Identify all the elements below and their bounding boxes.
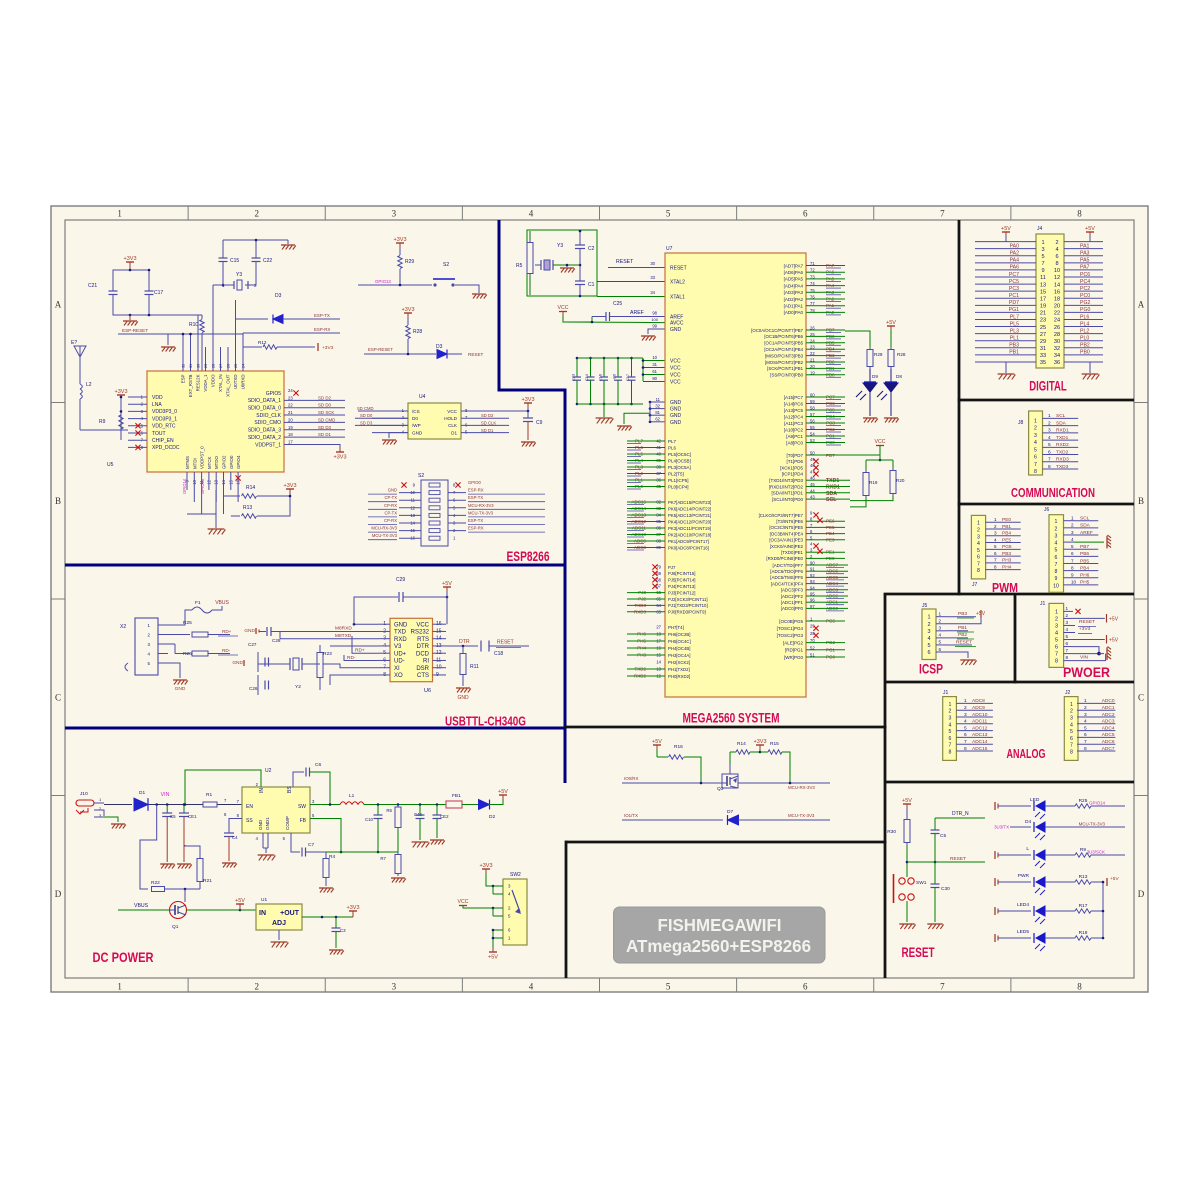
svg-text:13: 13 xyxy=(1040,282,1046,288)
svg-text:C25: C25 xyxy=(613,301,622,307)
svg-text:7: 7 xyxy=(1055,562,1058,568)
svg-text:ADC8: ADC8 xyxy=(972,698,985,704)
svg-text:SD D1: SD D1 xyxy=(318,432,331,437)
svg-text:ESP-TX: ESP-TX xyxy=(468,495,483,500)
svg-text:M8RXD: M8RXD xyxy=(335,626,352,632)
svg-text:PK6[ADC14/PCINT22]: PK6[ADC14/PCINT22] xyxy=(668,506,711,511)
svg-text:27: 27 xyxy=(219,364,223,368)
svg-text:7: 7 xyxy=(1048,457,1051,463)
svg-text:R12: R12 xyxy=(258,340,267,345)
svg-text:3: 3 xyxy=(938,626,941,631)
svg-text:ADC5: ADC5 xyxy=(1102,732,1115,738)
svg-text:U2: U2 xyxy=(265,768,272,774)
svg-text:PK1[ADC9/PCINT17]: PK1[ADC9/PCINT17] xyxy=(668,539,709,544)
svg-text:29: 29 xyxy=(1040,339,1046,345)
svg-text:6: 6 xyxy=(994,551,997,556)
svg-text:18: 18 xyxy=(1054,296,1060,302)
svg-text:PL2: PL2 xyxy=(1080,328,1089,334)
svg-text:5: 5 xyxy=(1070,729,1073,735)
svg-text:+5V: +5V xyxy=(902,798,912,804)
svg-text:R15: R15 xyxy=(770,741,779,747)
svg-text:30: 30 xyxy=(197,364,201,368)
svg-text:ADC12: ADC12 xyxy=(972,725,988,731)
svg-text:ADC9: ADC9 xyxy=(972,705,985,711)
svg-text:ADC14: ADC14 xyxy=(972,739,988,745)
svg-text:PH4[OC4B]: PH4[OC4B] xyxy=(668,646,690,651)
svg-text:C7: C7 xyxy=(308,842,314,848)
svg-text:100: 100 xyxy=(651,317,658,322)
svg-text:PL1[ICP5]: PL1[ICP5] xyxy=(668,478,689,483)
svg-text:VDD3P3_1: VDD3P3_1 xyxy=(152,416,177,422)
svg-text:6: 6 xyxy=(1084,732,1087,738)
svg-text:SD CLK: SD CLK xyxy=(481,421,496,426)
svg-text:/WP: /WP xyxy=(412,423,421,428)
svg-text:80: 80 xyxy=(652,376,657,381)
svg-text:C21: C21 xyxy=(88,283,97,289)
svg-text:PH0[RXD2]: PH0[RXD2] xyxy=(668,674,690,679)
svg-text:PH3: PH3 xyxy=(1002,558,1012,564)
svg-text:L1: L1 xyxy=(349,793,355,799)
svg-text:27: 27 xyxy=(656,625,661,630)
svg-text:[RXD1/INT2]PD2: [RXD1/INT2]PD2 xyxy=(769,484,804,489)
svg-text:[OC2A/PCINT4]PB4: [OC2A/PCINT4]PB4 xyxy=(764,347,803,352)
svg-text:[AD6]PA6: [AD6]PA6 xyxy=(784,270,804,275)
svg-text:GND: GND xyxy=(670,407,682,413)
svg-text:ESP-TX: ESP-TX xyxy=(314,313,330,318)
svg-text:DTR_N: DTR_N xyxy=(952,811,969,817)
svg-text:MTMS: MTMS xyxy=(185,456,190,469)
svg-text:3: 3 xyxy=(964,712,967,718)
svg-text:R20: R20 xyxy=(896,478,905,483)
svg-text:C27: C27 xyxy=(248,642,257,647)
svg-text:CE1: CE1 xyxy=(188,814,197,819)
svg-text:4: 4 xyxy=(938,633,941,638)
svg-text:PB1: PB1 xyxy=(1009,350,1019,356)
svg-text:SDA: SDA xyxy=(826,491,837,497)
svg-text:7: 7 xyxy=(949,743,952,749)
svg-text:PC4: PC4 xyxy=(1080,279,1090,285)
svg-text:+5V: +5V xyxy=(498,789,508,795)
svg-text:4: 4 xyxy=(977,541,980,547)
svg-text:SDIO_DATA_3: SDIO_DATA_3 xyxy=(248,428,281,434)
svg-text:[TXD0]PE1: [TXD0]PE1 xyxy=(781,550,804,555)
svg-text:7: 7 xyxy=(1055,652,1058,658)
svg-text:SD D2: SD D2 xyxy=(481,413,494,418)
svg-text:5: 5 xyxy=(949,729,952,735)
svg-text:[TOSC1]PG4: [TOSC1]PG4 xyxy=(777,626,804,631)
svg-text:ADC4: ADC4 xyxy=(1102,725,1115,731)
svg-text:R22: R22 xyxy=(151,880,160,886)
svg-text:22: 22 xyxy=(1054,311,1060,317)
svg-text:6: 6 xyxy=(1048,449,1051,455)
svg-text:18: 18 xyxy=(288,432,293,437)
svg-text:1: 1 xyxy=(117,209,122,219)
svg-text:U1: U1 xyxy=(261,897,267,903)
svg-text:A: A xyxy=(55,299,62,309)
svg-text:ESP: ESP xyxy=(181,374,186,383)
svg-text:3: 3 xyxy=(392,982,397,992)
svg-text:C5: C5 xyxy=(170,814,176,819)
svg-text:RESET: RESET xyxy=(616,259,634,265)
svg-text:5: 5 xyxy=(1048,442,1051,448)
svg-text:10: 10 xyxy=(1054,268,1060,274)
svg-text:8: 8 xyxy=(1070,750,1073,756)
svg-text:[TOSC2]PG3: [TOSC2]PG3 xyxy=(777,633,804,638)
svg-text:26: 26 xyxy=(1054,325,1060,331)
svg-text:4: 4 xyxy=(1071,537,1074,542)
svg-text:[A10]PC2: [A10]PC2 xyxy=(784,427,804,432)
svg-text:GPIO13: GPIO13 xyxy=(375,279,391,284)
svg-text:33: 33 xyxy=(650,275,655,280)
svg-text:VDD: VDD xyxy=(152,395,163,401)
svg-text:+5V: +5V xyxy=(1109,617,1119,623)
svg-text:GPIO0: GPIO0 xyxy=(468,480,481,485)
svg-text:IO0/RX: IO0/RX xyxy=(624,776,638,781)
svg-text:PH7[T4]: PH7[T4] xyxy=(668,625,684,630)
svg-text:29: 29 xyxy=(204,364,208,368)
svg-text:VDD_RTC: VDD_RTC xyxy=(152,424,176,430)
svg-text:2: 2 xyxy=(1071,523,1074,528)
svg-text:CP-RX: CP-RX xyxy=(384,518,397,523)
svg-text:SDIO_DATA_0: SDIO_DATA_0 xyxy=(248,406,281,412)
svg-text:PJ3[PCINT12]: PJ3[PCINT12] xyxy=(668,590,695,595)
svg-text:CHIP_EN: CHIP_EN xyxy=(152,438,174,444)
svg-text:[A8]PC0: [A8]PC0 xyxy=(786,440,803,445)
svg-text:[T1]PD6: [T1]PD6 xyxy=(786,459,803,464)
svg-text:MTDO: MTDO xyxy=(214,455,219,469)
svg-text:[T3/INT6]PE6: [T3/INT6]PE6 xyxy=(776,519,803,524)
svg-text:5: 5 xyxy=(994,544,997,549)
svg-text:+5V: +5V xyxy=(442,581,452,587)
svg-text:PA4: PA4 xyxy=(1010,258,1020,264)
svg-text:4: 4 xyxy=(529,209,534,219)
svg-text:1: 1 xyxy=(938,612,941,617)
svg-text:+3V3: +3V3 xyxy=(284,483,297,489)
svg-text:S2: S2 xyxy=(443,262,449,268)
svg-text:D1: D1 xyxy=(451,430,457,435)
svg-text:GND: GND xyxy=(394,622,408,628)
svg-text:GPIO5: GPIO5 xyxy=(266,391,282,397)
svg-text:J7: J7 xyxy=(972,582,978,588)
svg-text:VDDPST_0: VDDPST_0 xyxy=(200,446,205,469)
svg-text:[AD0]PA0: [AD0]PA0 xyxy=(784,310,804,315)
svg-text:XO: XO xyxy=(394,673,403,679)
svg-text:PG0: PG0 xyxy=(1080,307,1090,313)
svg-text:R13: R13 xyxy=(243,505,252,511)
svg-text:ATmega2560+ESP8266: ATmega2560+ESP8266 xyxy=(626,936,811,956)
svg-text:PL6: PL6 xyxy=(1080,314,1089,320)
svg-text:+5V: +5V xyxy=(488,955,498,961)
svg-text:ADC7: ADC7 xyxy=(1102,746,1115,752)
svg-text:S2: S2 xyxy=(418,473,424,479)
svg-text:R19: R19 xyxy=(869,480,878,485)
svg-text:C28: C28 xyxy=(272,638,281,643)
svg-text:1: 1 xyxy=(927,615,930,621)
svg-text:25: 25 xyxy=(1040,325,1046,331)
svg-text:+5V: +5V xyxy=(1001,226,1011,232)
svg-text:[CLKO/ICP3/INT7]PE7: [CLKO/ICP3/INT7]PE7 xyxy=(759,513,804,518)
svg-text:PG2: PG2 xyxy=(1080,300,1090,306)
svg-text:[ADC1]PF1: [ADC1]PF1 xyxy=(781,600,804,605)
svg-text:PL7: PL7 xyxy=(1010,314,1019,320)
svg-text:U0TXD: U0TXD xyxy=(233,375,238,389)
svg-text:RESET: RESET xyxy=(497,640,514,646)
svg-text:23: 23 xyxy=(288,395,293,400)
svg-text:EN: EN xyxy=(246,804,253,810)
svg-text:GPIO14: GPIO14 xyxy=(182,478,187,494)
svg-text:+3V3: +3V3 xyxy=(402,307,415,313)
svg-text:1: 1 xyxy=(964,698,967,704)
svg-text:10: 10 xyxy=(1053,583,1059,589)
svg-text:Y2: Y2 xyxy=(295,684,301,690)
svg-text:Y3: Y3 xyxy=(236,272,242,278)
svg-text:2: 2 xyxy=(964,705,967,711)
svg-text:/CS: /CS xyxy=(412,409,420,414)
svg-text:D: D xyxy=(55,889,62,899)
svg-text:V3: V3 xyxy=(394,644,402,650)
svg-text:+3V3: +3V3 xyxy=(347,905,360,911)
svg-text:GPIO0: GPIO0 xyxy=(229,455,234,469)
svg-text:12: 12 xyxy=(1054,275,1060,281)
svg-text:VDD3P3_0: VDD3P3_0 xyxy=(152,409,177,415)
svg-text:RXD2: RXD2 xyxy=(1056,442,1069,448)
svg-text:2: 2 xyxy=(1034,426,1037,432)
svg-text:+5V: +5V xyxy=(235,898,245,904)
svg-text:MCU-TX-3V3: MCU-TX-3V3 xyxy=(788,813,815,818)
svg-text:6: 6 xyxy=(1065,641,1068,646)
svg-text:IN: IN xyxy=(259,788,265,793)
svg-text:5: 5 xyxy=(927,643,930,649)
svg-text:R21: R21 xyxy=(203,878,212,884)
svg-text:PD7: PD7 xyxy=(1009,300,1019,306)
svg-text:R13: R13 xyxy=(1079,874,1088,880)
svg-text:14: 14 xyxy=(656,660,661,665)
svg-text:1: 1 xyxy=(994,517,997,522)
svg-text:[AD7]PA7: [AD7]PA7 xyxy=(784,263,804,268)
svg-text:J8: J8 xyxy=(1018,420,1024,426)
svg-text:LED5: LED5 xyxy=(1017,929,1029,935)
svg-text:3: 3 xyxy=(1055,533,1058,539)
svg-text:3: 3 xyxy=(1065,620,1068,625)
svg-text:D9: D9 xyxy=(872,374,878,379)
svg-text:5: 5 xyxy=(666,209,671,219)
svg-text:8: 8 xyxy=(1077,982,1082,992)
svg-text:1: 1 xyxy=(1034,418,1037,424)
svg-text:CP-TX: CP-TX xyxy=(384,510,397,515)
svg-text:17: 17 xyxy=(288,439,293,444)
svg-text:[SDA/INT1]PD1: [SDA/INT1]PD1 xyxy=(771,491,803,496)
svg-text:6: 6 xyxy=(1034,455,1037,461)
svg-text:3U3/TX: 3U3/TX xyxy=(994,825,1009,830)
svg-text:DCD: DCD xyxy=(416,651,430,657)
svg-text:17: 17 xyxy=(1040,296,1046,302)
svg-text:[XCK1]PD5: [XCK1]PD5 xyxy=(780,465,804,470)
svg-text:R14: R14 xyxy=(246,485,255,491)
svg-text:8: 8 xyxy=(1034,469,1037,475)
svg-text:PB4: PB4 xyxy=(1002,531,1011,537)
svg-text:19: 19 xyxy=(288,425,293,430)
svg-text:U7: U7 xyxy=(666,246,673,252)
svg-text:COMP: COMP xyxy=(285,816,290,830)
svg-text:PJ0[RXD3/PCINT9]: PJ0[RXD3/PCINT9] xyxy=(668,610,706,615)
svg-text:[A11]PC3: [A11]PC3 xyxy=(784,421,803,426)
svg-text:31: 31 xyxy=(1040,346,1046,352)
svg-text:C5: C5 xyxy=(940,833,946,839)
svg-text:1: 1 xyxy=(117,982,122,992)
svg-text:8: 8 xyxy=(1065,655,1068,660)
svg-text:VIN: VIN xyxy=(161,792,170,798)
svg-text:4: 4 xyxy=(1034,440,1037,446)
svg-text:R9: R9 xyxy=(1080,847,1086,853)
svg-text:PA0: PA0 xyxy=(1010,243,1020,249)
svg-text:2: 2 xyxy=(1055,240,1058,246)
svg-text:4: 4 xyxy=(1084,719,1087,725)
svg-text:XI: XI xyxy=(394,666,400,672)
svg-text:DSR: DSR xyxy=(416,666,429,672)
svg-text:15: 15 xyxy=(1040,289,1046,295)
svg-text:RXD: RXD xyxy=(394,637,407,643)
svg-text:C17: C17 xyxy=(626,374,630,381)
svg-text:MTCK: MTCK xyxy=(207,456,212,469)
svg-text:C26: C26 xyxy=(249,686,258,691)
svg-text:[A13]PC5: [A13]PC5 xyxy=(784,408,804,413)
svg-text:7: 7 xyxy=(1065,648,1068,653)
svg-text:D3: D3 xyxy=(275,293,282,299)
svg-text:[OC1B/PCINT6]PB6: [OC1B/PCINT6]PB6 xyxy=(764,334,803,339)
svg-text:SDIO_DATA_2: SDIO_DATA_2 xyxy=(248,435,281,441)
svg-text:U5: U5 xyxy=(107,462,114,468)
svg-text:PL2[T5]: PL2[T5] xyxy=(668,471,684,476)
svg-text:[OC0B]PG5: [OC0B]PG5 xyxy=(779,619,803,624)
svg-text:R25: R25 xyxy=(1079,798,1088,804)
svg-text:C30: C30 xyxy=(941,886,950,892)
svg-text:[WR]PG0: [WR]PG0 xyxy=(784,655,803,660)
svg-text:6: 6 xyxy=(1071,551,1074,556)
svg-text:24: 24 xyxy=(288,388,293,393)
svg-text:PC0: PC0 xyxy=(1080,293,1090,299)
svg-text:PH3[OC4A]: PH3[OC4A] xyxy=(668,653,690,658)
svg-text:ESP-RX: ESP-RX xyxy=(468,488,484,493)
svg-text:6: 6 xyxy=(927,650,930,656)
svg-text:FB1: FB1 xyxy=(452,793,461,799)
svg-text:PJ5[PCINT14]: PJ5[PCINT14] xyxy=(668,578,695,583)
svg-text:ADC3: ADC3 xyxy=(1102,719,1115,725)
svg-text:4: 4 xyxy=(1055,541,1058,547)
svg-text:R6: R6 xyxy=(386,808,392,813)
svg-text:5: 5 xyxy=(1041,254,1044,260)
svg-text:ADC2: ADC2 xyxy=(1102,712,1115,718)
svg-text:[AD4]PA4: [AD4]PA4 xyxy=(784,283,804,288)
svg-text:[ALE]PG2: [ALE]PG2 xyxy=(783,640,804,645)
svg-text:PH4: PH4 xyxy=(1002,564,1012,570)
svg-text:4: 4 xyxy=(994,537,997,542)
svg-text:R18: R18 xyxy=(1079,930,1088,936)
svg-text:3U3/SCK: 3U3/SCK xyxy=(1087,850,1105,855)
svg-text:4: 4 xyxy=(1055,630,1058,636)
svg-text:32: 32 xyxy=(655,403,660,408)
svg-text:7: 7 xyxy=(1071,558,1074,563)
svg-text:RD+: RD+ xyxy=(355,648,365,654)
svg-text:21: 21 xyxy=(288,410,293,415)
svg-text:36: 36 xyxy=(1054,360,1060,366)
svg-text:Q3: Q3 xyxy=(717,786,724,792)
svg-text:PH5[OC4C]: PH5[OC4C] xyxy=(668,639,691,644)
svg-text:XTAL_IN: XTAL_IN xyxy=(218,375,223,393)
svg-text:VDDO: VDDO xyxy=(211,374,216,387)
svg-text:L: L xyxy=(1026,846,1029,852)
svg-text:2: 2 xyxy=(994,524,997,529)
svg-text:RXD1: RXD1 xyxy=(826,485,840,491)
svg-text:IN: IN xyxy=(259,910,266,917)
svg-text:31: 31 xyxy=(652,362,657,367)
svg-text:2: 2 xyxy=(1055,526,1058,532)
svg-text:Y3: Y3 xyxy=(557,243,563,249)
svg-text:4: 4 xyxy=(927,636,930,642)
svg-text:RXD1: RXD1 xyxy=(1056,428,1069,434)
svg-text:RXD3: RXD3 xyxy=(1056,457,1069,463)
svg-text:4: 4 xyxy=(949,722,952,728)
svg-text:[OC3C/INT5]PE5: [OC3C/INT5]PE5 xyxy=(769,525,803,530)
svg-text:+OUT: +OUT xyxy=(280,910,300,917)
svg-text:4: 4 xyxy=(964,719,967,725)
svg-text:8: 8 xyxy=(949,750,952,756)
svg-text:RES12K: RES12K xyxy=(196,374,201,391)
svg-text:SW: SW xyxy=(298,804,306,810)
svg-text:CTS: CTS xyxy=(417,673,429,679)
svg-text:PC2: PC2 xyxy=(1080,286,1090,292)
svg-text:C: C xyxy=(55,692,61,702)
svg-text:SCL: SCL xyxy=(826,497,837,503)
svg-text:PB3: PB3 xyxy=(1002,551,1011,557)
svg-text:XPD_DCDC: XPD_DCDC xyxy=(152,445,180,451)
svg-text:5: 5 xyxy=(1055,548,1058,554)
svg-text:9: 9 xyxy=(1055,576,1058,582)
svg-text:PL3[OC5A]: PL3[OC5A] xyxy=(668,465,691,470)
svg-text:LED: LED xyxy=(1030,797,1040,803)
svg-text:R9: R9 xyxy=(99,419,106,425)
svg-text:R7: R7 xyxy=(380,856,386,861)
svg-text:GND: GND xyxy=(670,420,682,426)
svg-text:[ADC0]PF0: [ADC0]PF0 xyxy=(781,606,804,611)
svg-text:PB1: PB1 xyxy=(1002,524,1011,530)
svg-text:D: D xyxy=(1138,889,1145,899)
svg-text:3: 3 xyxy=(1048,428,1051,434)
svg-text:PH2[XCK2]: PH2[XCK2] xyxy=(668,660,690,665)
svg-text:VBUS: VBUS xyxy=(215,600,229,606)
svg-text:FB: FB xyxy=(300,818,307,824)
svg-text:SD SCK: SD SCK xyxy=(318,410,334,415)
svg-text:[A15]PC7: [A15]PC7 xyxy=(784,395,804,400)
svg-text:2: 2 xyxy=(927,622,930,628)
svg-text:HOLD: HOLD xyxy=(444,416,457,421)
svg-text:5: 5 xyxy=(666,982,671,992)
svg-text:PL4[OC5B]: PL4[OC5B] xyxy=(668,458,691,463)
svg-text:35: 35 xyxy=(1040,360,1046,366)
svg-text:5: 5 xyxy=(977,548,980,554)
svg-text:ADC0: ADC0 xyxy=(1102,698,1115,704)
svg-text:R23: R23 xyxy=(323,651,332,657)
svg-text:[AD5]PA5: [AD5]PA5 xyxy=(784,277,804,282)
svg-text:[OC3A/AIN1]PE3: [OC3A/AIN1]PE3 xyxy=(769,538,803,543)
svg-text:SD D2: SD D2 xyxy=(318,395,331,400)
svg-text:ESP8266: ESP8266 xyxy=(507,548,550,564)
svg-text:GND: GND xyxy=(258,819,263,830)
svg-text:6: 6 xyxy=(977,555,980,561)
svg-text:LED4: LED4 xyxy=(1017,902,1029,908)
svg-text:SDA: SDA xyxy=(1056,420,1067,426)
svg-text:ANALOG: ANALOG xyxy=(1007,746,1046,761)
svg-text:GPIO4: GPIO4 xyxy=(236,455,241,469)
